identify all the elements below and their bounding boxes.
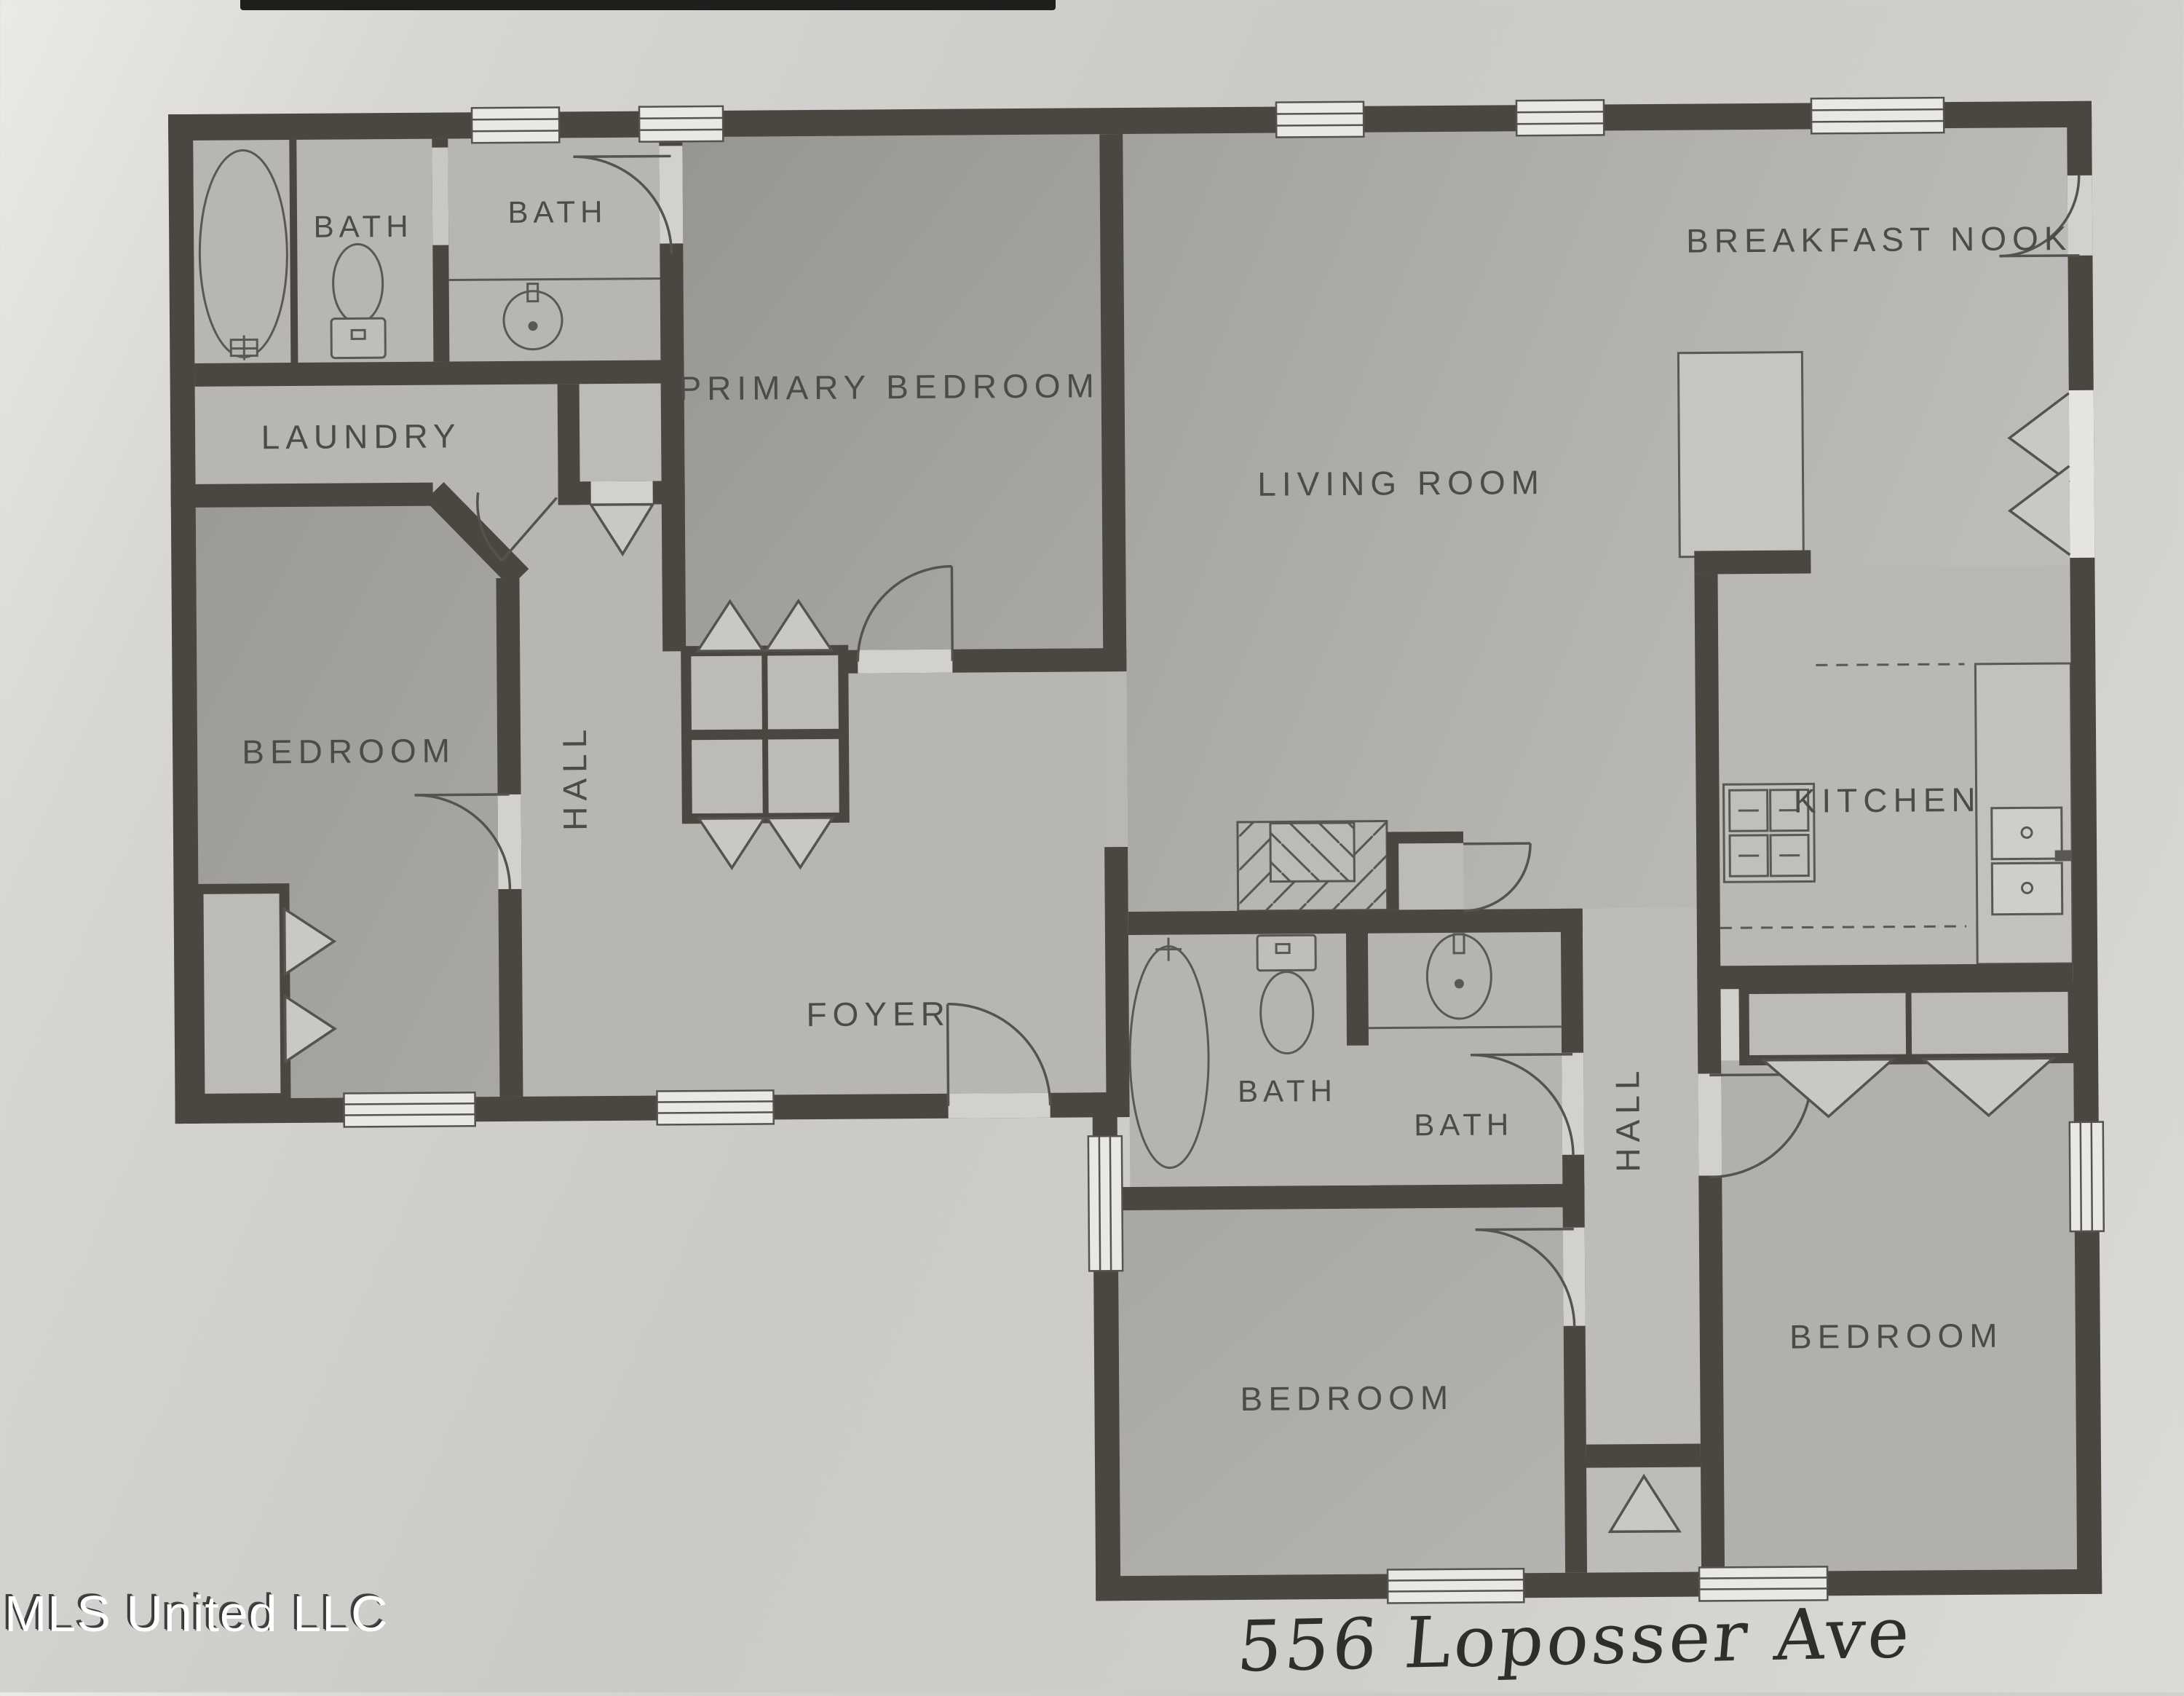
wall-island-stub: [1694, 550, 1811, 574]
living-room-closet: [1387, 832, 1464, 910]
wall-laundry-bedroom: [171, 483, 433, 508]
wall-foyer-bath-lower: [1104, 847, 1130, 1117]
window: [639, 106, 723, 142]
room-label-foyer: FOYER: [806, 995, 951, 1033]
wall-baths-laundry: [194, 360, 684, 387]
kitchen-sink-icon: [1975, 663, 2074, 964]
floor-plan: BATH BATH LAUNDRY PRIMARY BEDROOM LIVING…: [0, 0, 2184, 1692]
room-label-bath-mid-1: BATH: [1238, 1073, 1337, 1108]
kitchen-island: [1678, 352, 1803, 557]
handwritten-address: 556 Loposser Ave: [1234, 1592, 1896, 1687]
wall-laundry-closet: [558, 384, 580, 505]
room-label-bath-left-1: BATH: [314, 209, 414, 244]
window: [2070, 1122, 2104, 1231]
room-label-bath-mid-2: BATH: [1414, 1107, 1514, 1142]
bedroom-left-closet: [198, 888, 285, 1099]
wall-bath-bedroom-mid: [1117, 1184, 1584, 1210]
wall-foyer-living-upper: [1099, 134, 1126, 671]
room-label-breakfast-nook: BREAKFAST NOOK: [1686, 219, 2073, 260]
hatched-storage: [1238, 821, 1388, 911]
wall-bathA-bathB: [1346, 932, 1369, 1046]
room-label-living-room: LIVING ROOM: [1257, 463, 1545, 503]
bedroom-bottom-right-floor: [1721, 1058, 2077, 1571]
room-label-bedroom-left: BEDROOM: [242, 731, 456, 770]
room-label-primary-bedroom: PRIMARY BEDROOM: [678, 366, 1100, 407]
window: [657, 1090, 773, 1124]
room-label-bedroom-bottom-middle: BEDROOM: [1240, 1379, 1454, 1418]
window: [1276, 102, 1364, 138]
window: [1516, 100, 1604, 135]
laundry-closet-floor: [579, 383, 662, 481]
hall-right-floor: [1583, 908, 1701, 1573]
room-label-bedroom-bottom-right: BEDROOM: [1789, 1317, 2003, 1356]
window: [1388, 1569, 1524, 1603]
room-label-hall-right: HALL: [1608, 1065, 1647, 1172]
room-label-laundry: LAUNDRY: [261, 417, 461, 456]
wall-living-bottom: [1128, 909, 1583, 935]
window: [1811, 98, 1944, 133]
mls-watermark: MLS United LLC: [4, 1585, 389, 1643]
wall-tub-divider: [289, 140, 298, 363]
foyer-living-opening: [1103, 671, 1128, 847]
room-label-bath-left-2: BATH: [507, 194, 607, 229]
room-label-hall-left: HALL: [555, 724, 594, 831]
wall-hall-closet-divider: [1586, 1444, 1701, 1468]
floor-plan-svg: BATH BATH LAUNDRY PRIMARY BEDROOM LIVING…: [0, 0, 2184, 1692]
window: [344, 1092, 475, 1127]
floor-plan-photo: { "document": { "kind": "scanned floor p…: [0, 0, 2184, 1692]
room-label-kitchen: KITCHEN: [1794, 781, 1982, 820]
window: [1088, 1136, 1123, 1271]
window: [472, 107, 559, 143]
